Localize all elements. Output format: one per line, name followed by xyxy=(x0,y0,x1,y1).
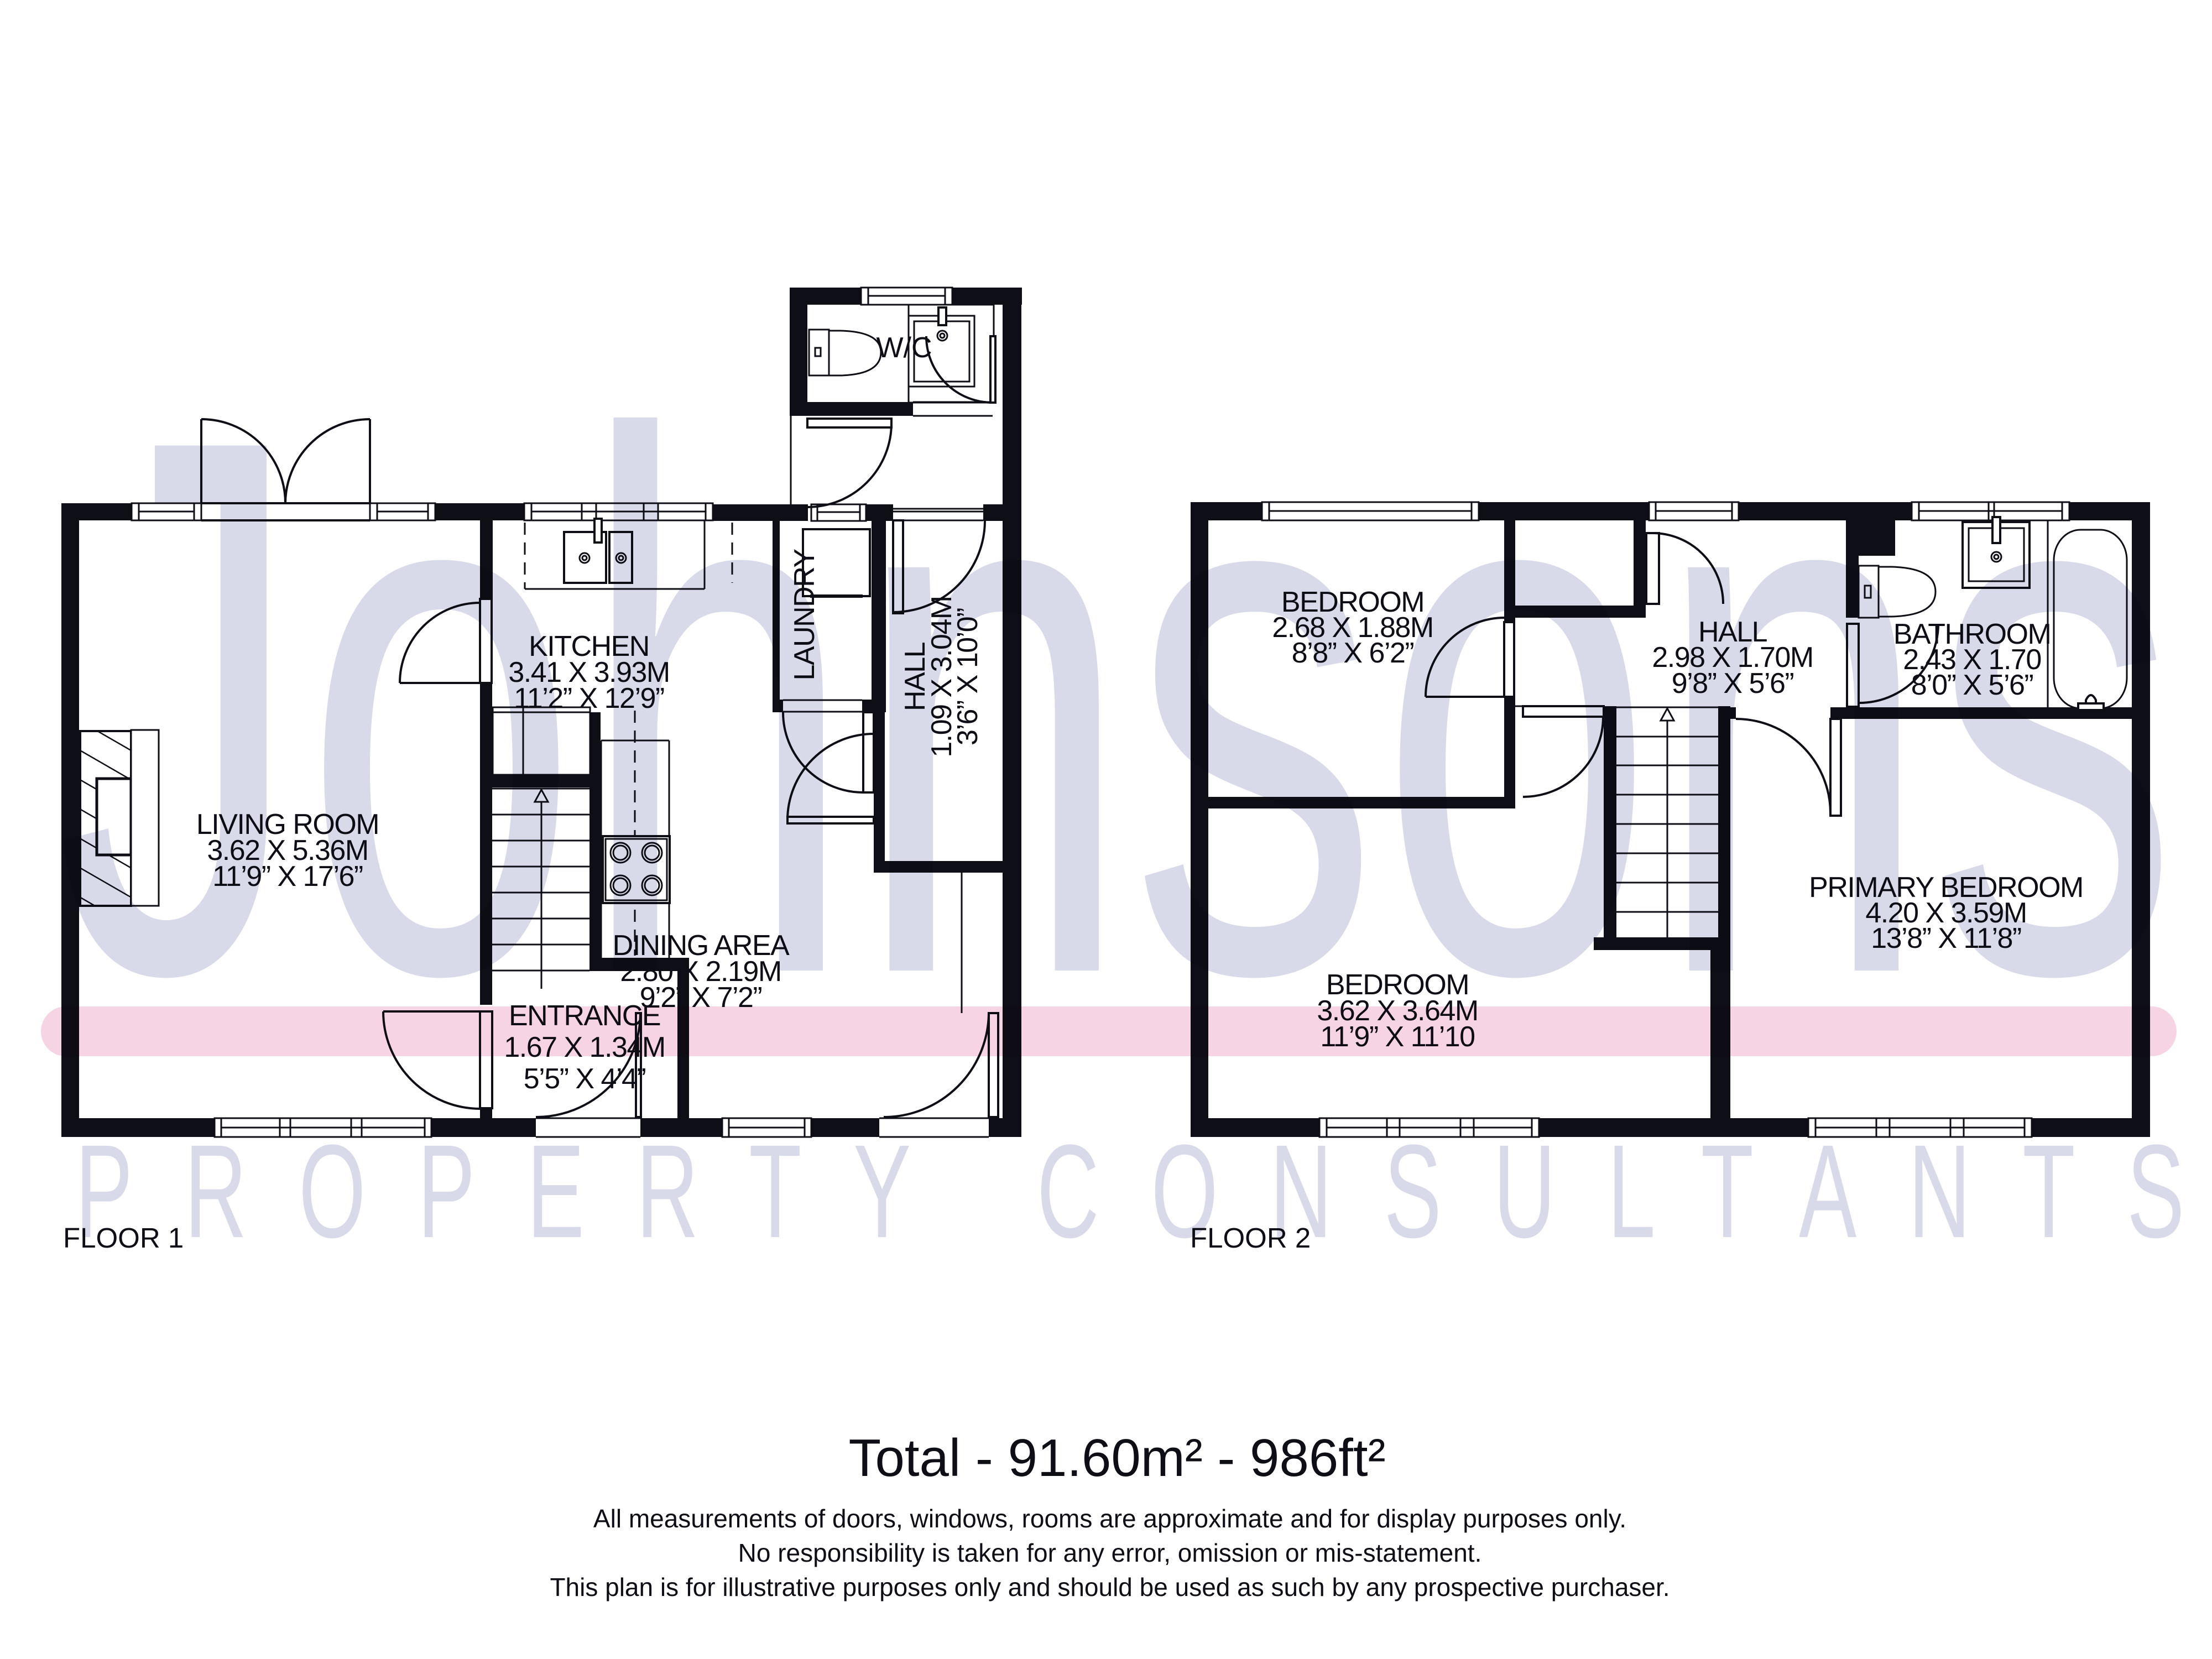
svg-text:No responsibility is taken for: No responsibility is taken for any error… xyxy=(738,1538,1482,1567)
svg-text:This plan is for illustrative: This plan is for illustrative purposes o… xyxy=(550,1573,1670,1601)
svg-text:All measurements of doors, win: All measurements of doors, windows, room… xyxy=(593,1504,1626,1533)
svg-text:Johnsons: Johnsons xyxy=(55,279,2179,1133)
svg-text:Total - 91.60m² - 986ft²: Total - 91.60m² - 986ft² xyxy=(848,1428,1385,1488)
